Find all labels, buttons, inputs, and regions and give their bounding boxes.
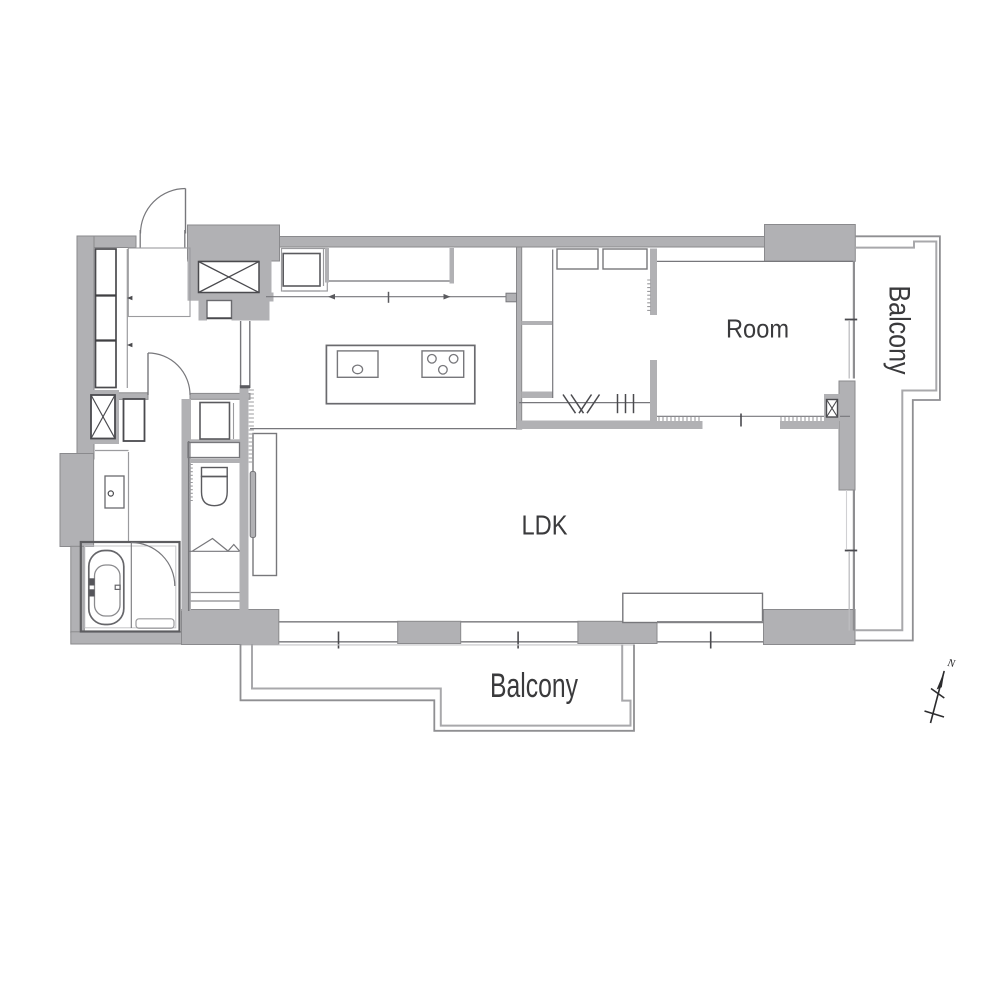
svg-text:Room: Room	[726, 314, 789, 344]
svg-text:LDK: LDK	[522, 510, 568, 541]
svg-text:Balcony: Balcony	[883, 286, 916, 375]
svg-text:Balcony: Balcony	[490, 667, 578, 705]
